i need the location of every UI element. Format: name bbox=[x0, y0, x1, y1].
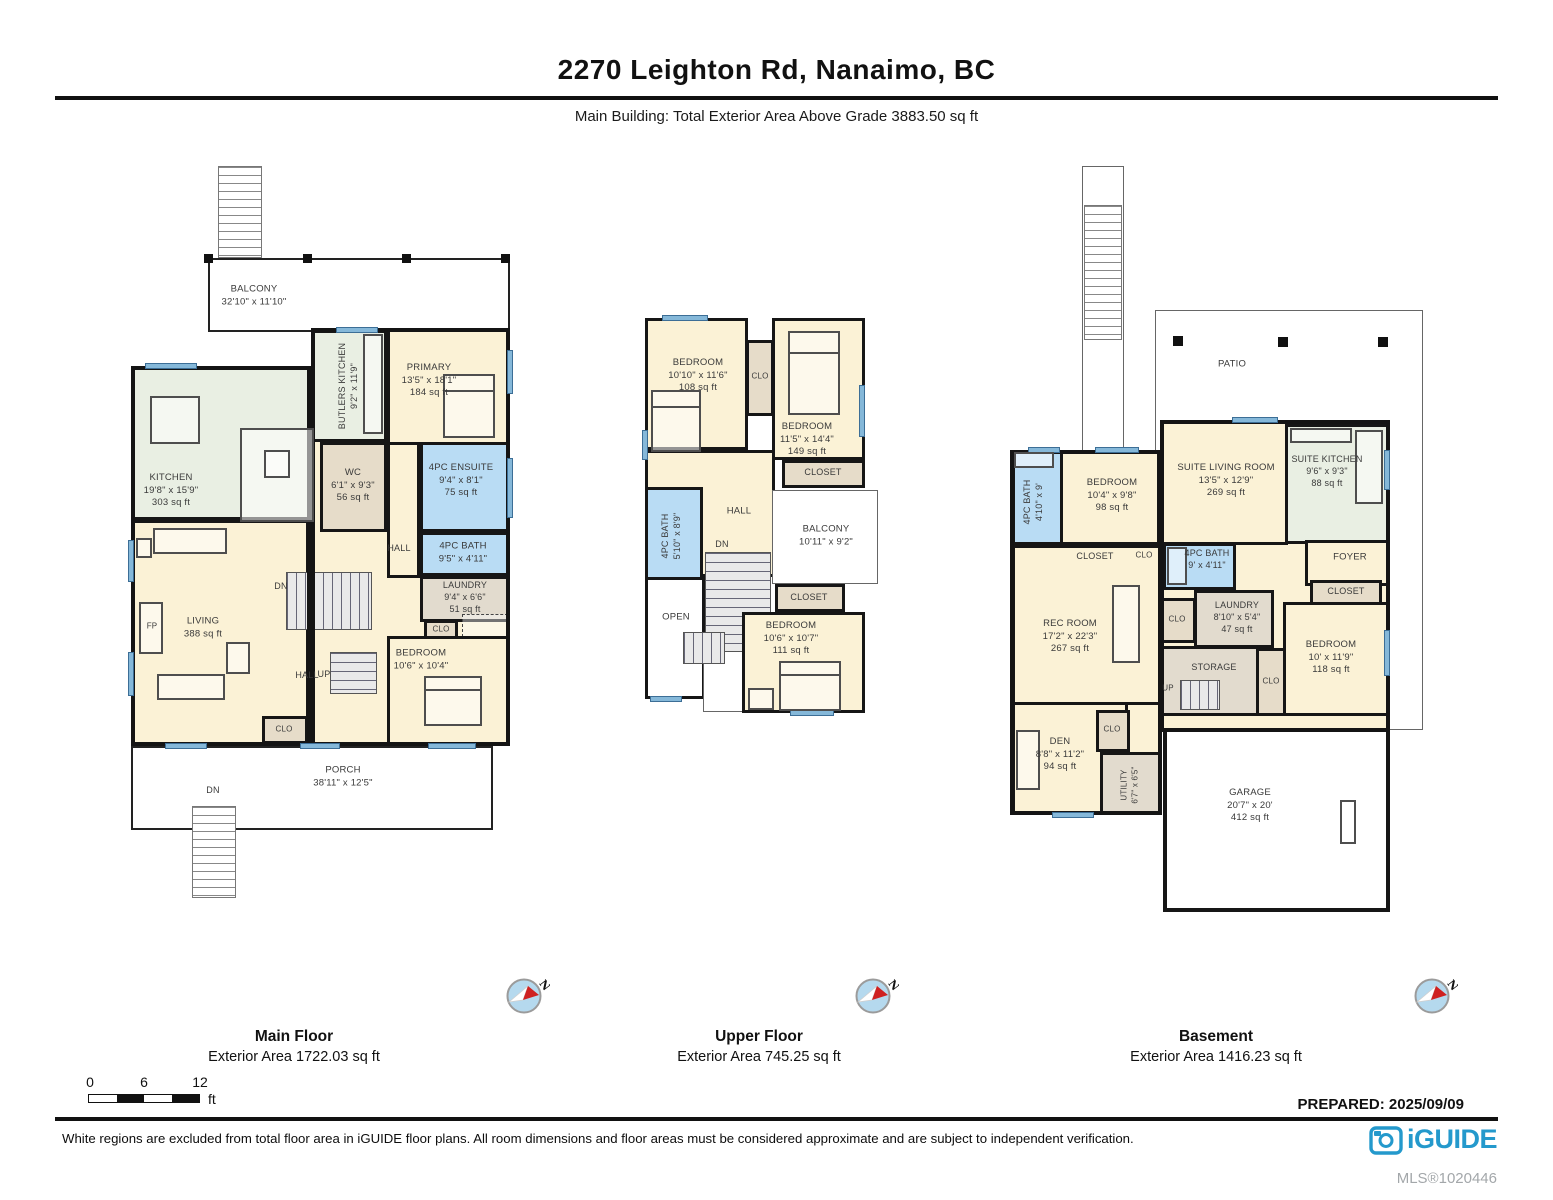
bathtub bbox=[1014, 452, 1054, 468]
window bbox=[642, 430, 648, 460]
label-clo-2: CLO bbox=[275, 725, 292, 736]
title-divider bbox=[55, 96, 1498, 100]
post bbox=[1378, 337, 1388, 347]
window bbox=[428, 743, 476, 749]
sofa bbox=[157, 674, 225, 700]
label-bsmt-clo-2: CLO bbox=[1168, 615, 1185, 626]
label-foyer: FOYER bbox=[1333, 552, 1367, 565]
window bbox=[165, 743, 207, 749]
label-upper-dn: DN bbox=[715, 539, 728, 551]
prepared-date: PREPARED: 2025/09/09 bbox=[1298, 1096, 1464, 1113]
label-clo: CLO bbox=[432, 625, 449, 636]
label-storage: STORAGE bbox=[1191, 662, 1236, 674]
room-hall-main bbox=[387, 442, 420, 578]
shelf bbox=[1112, 585, 1140, 663]
bed bbox=[424, 676, 482, 726]
kitchen-counter bbox=[1290, 428, 1352, 443]
island-sink bbox=[264, 450, 290, 478]
label-hall-2: HALL bbox=[295, 670, 318, 682]
label-bsmt-bath-2: 4PC BATH9' x 4'11" bbox=[1185, 548, 1230, 572]
iguide-logo-text: iGUIDE bbox=[1407, 1124, 1497, 1155]
floor-area: Exterior Area 745.25 sq ft bbox=[677, 1049, 841, 1065]
label-bsmt-bath-1: 4PC BATH4'10" x 9' bbox=[1022, 480, 1046, 525]
mls-number: MLS®1020446 bbox=[1397, 1170, 1497, 1187]
post bbox=[402, 254, 411, 263]
label-upper-bath: 4PC BATH5'10" x 8'9" bbox=[660, 513, 684, 560]
scale-unit: ft bbox=[208, 1091, 216, 1107]
floor-area: Exterior Area 1722.03 sq ft bbox=[208, 1049, 380, 1065]
label-up: UP bbox=[318, 669, 331, 681]
window bbox=[1384, 630, 1390, 676]
label-hall: HALL bbox=[387, 543, 410, 555]
page-title: 2270 Leighton Rd, Nanaimo, BC bbox=[0, 54, 1553, 86]
window bbox=[145, 363, 197, 369]
post bbox=[204, 254, 213, 263]
garage-door-pillar bbox=[1340, 800, 1356, 844]
floor-area: Exterior Area 1416.23 sq ft bbox=[1130, 1049, 1302, 1065]
compass-icon: N bbox=[504, 974, 550, 1016]
label-upper-open: OPEN bbox=[662, 612, 690, 625]
footer-divider bbox=[55, 1117, 1498, 1121]
label-bsmt-clo-1: CLO bbox=[1135, 551, 1152, 562]
label-bsmt-clo-4: CLO bbox=[1103, 725, 1120, 736]
label-upper-clo: CLO bbox=[751, 372, 768, 383]
side-table bbox=[136, 538, 152, 558]
floor-name: Main Floor bbox=[208, 1028, 380, 1046]
caption-main-floor: Main Floor Exterior Area 1722.03 sq ft bbox=[208, 1028, 380, 1065]
label-bsmt-bedroom-2: BEDROOM10' x 11'9"118 sq ft bbox=[1306, 639, 1357, 677]
label-utility: UTILITY6'7" x 6'5" bbox=[1119, 766, 1140, 803]
window bbox=[1384, 450, 1390, 490]
dining-table bbox=[150, 396, 200, 444]
label-bsmt-closet-1: CLOSET bbox=[1076, 551, 1113, 563]
label-dn: DN bbox=[274, 581, 287, 593]
scale-tick-0: 0 bbox=[86, 1074, 94, 1090]
label-bsmt-bedroom-1: BEDROOM10'4" x 9'8"98 sq ft bbox=[1087, 477, 1138, 515]
window bbox=[128, 652, 134, 696]
window bbox=[662, 315, 708, 321]
label-laundry: LAUNDRY9'4" x 6'6"51 sq ft bbox=[443, 580, 487, 616]
basement-stairs-up bbox=[1180, 680, 1220, 710]
label-upper-closet-1: CLOSET bbox=[804, 467, 841, 479]
floor-name: Basement bbox=[1130, 1028, 1302, 1046]
compass-icon: N bbox=[853, 974, 899, 1016]
basement-exterior-stairs bbox=[1084, 205, 1122, 340]
scale-tick-12: 12 bbox=[192, 1074, 208, 1090]
window bbox=[1232, 417, 1278, 423]
butlers-counter bbox=[363, 334, 383, 434]
floor-plan-page: 2270 Leighton Rd, Nanaimo, BC Main Build… bbox=[0, 0, 1553, 1200]
label-butlers-kitchen: BUTLERS KITCHEN9'2" x 11'9" bbox=[337, 343, 361, 430]
window bbox=[128, 540, 134, 582]
label-upper-hall: HALL bbox=[727, 506, 752, 519]
iguide-logo: iGUIDE bbox=[1369, 1124, 1497, 1155]
label-upper-bedroom-1: BEDROOM10'10" x 11'6"108 sq ft bbox=[668, 357, 727, 395]
window bbox=[507, 350, 513, 394]
label-wc: WC6'1" x 9'3"56 sq ft bbox=[331, 467, 375, 505]
post bbox=[501, 254, 510, 263]
window bbox=[1095, 447, 1139, 453]
post bbox=[303, 254, 312, 263]
label-bedroom: BEDROOM10'6" x 10'4" bbox=[394, 647, 449, 672]
label-ensuite: 4PC ENSUITE9'4" x 8'1"75 sq ft bbox=[429, 462, 494, 500]
label-upper-bedroom-3: BEDROOM10'6" x 10'7"111 sq ft bbox=[764, 620, 819, 658]
window bbox=[507, 458, 513, 518]
page-subtitle: Main Building: Total Exterior Area Above… bbox=[0, 108, 1553, 125]
window bbox=[859, 385, 865, 437]
label-rec-room: REC ROOM17'2" x 22'3"267 sq ft bbox=[1043, 618, 1098, 656]
caption-basement: Basement Exterior Area 1416.23 sq ft bbox=[1130, 1028, 1302, 1065]
label-suite-living: SUITE LIVING ROOM13'5" x 12'9"269 sq ft bbox=[1177, 462, 1274, 500]
label-upper-closet-2: CLOSET bbox=[790, 592, 827, 604]
caption-upper-floor: Upper Floor Exterior Area 745.25 sq ft bbox=[677, 1028, 841, 1065]
label-fireplace: FP bbox=[147, 622, 158, 633]
label-primary: PRIMARY13'5" x 18'1"184 sq ft bbox=[402, 362, 457, 400]
window bbox=[650, 696, 682, 702]
label-balcony: BALCONY32'10" x 11'10" bbox=[222, 283, 287, 308]
label-porch: PORCH38'11" x 12'5" bbox=[313, 764, 372, 789]
bed bbox=[651, 390, 701, 452]
main-stairs-dn bbox=[286, 572, 372, 630]
label-upper-bedroom-2: BEDROOM11'5" x 14'4"149 sq ft bbox=[780, 421, 834, 459]
iguide-camera-icon bbox=[1369, 1125, 1403, 1155]
label-living: LIVING388 sq ft bbox=[184, 615, 222, 640]
label-patio: PATIO bbox=[1218, 359, 1246, 372]
label-bsmt-laundry: LAUNDRY8'10" x 5'4"47 sq ft bbox=[1214, 600, 1261, 636]
label-dn-porch: DN bbox=[206, 785, 219, 797]
label-garage: GARAGE20'7" x 20'412 sq ft bbox=[1227, 787, 1273, 825]
label-suite-kitchen: SUITE KITCHEN9'6" x 9'3"88 sq ft bbox=[1291, 454, 1362, 490]
window bbox=[336, 327, 378, 333]
main-exterior-stairs-top bbox=[218, 166, 262, 258]
window bbox=[300, 743, 340, 749]
sofa bbox=[153, 528, 227, 554]
label-bsmt-closet-2: CLOSET bbox=[1327, 586, 1364, 598]
label-upper-balcony: BALCONY10'11" x 9'2" bbox=[799, 523, 853, 548]
upper-stairs-turn bbox=[683, 632, 725, 664]
main-stairs-up bbox=[330, 652, 377, 694]
window bbox=[1052, 812, 1094, 818]
scale-tick-6: 6 bbox=[140, 1074, 148, 1090]
post bbox=[1278, 337, 1288, 347]
armchair bbox=[226, 642, 250, 674]
post bbox=[1173, 336, 1183, 346]
label-den: DEN8'8" x 11'2"94 sq ft bbox=[1036, 736, 1085, 774]
label-bsmt-up: UP bbox=[1162, 684, 1174, 695]
main-porch-deck bbox=[131, 746, 493, 830]
bed bbox=[788, 331, 840, 415]
label-kitchen: KITCHEN19'8" x 15'9"303 sq ft bbox=[144, 472, 199, 510]
label-bsmt-clo-3: CLO bbox=[1262, 677, 1279, 688]
compass-icon: N bbox=[1412, 974, 1458, 1016]
floor-name: Upper Floor bbox=[677, 1028, 841, 1046]
bed bbox=[779, 661, 841, 711]
dresser bbox=[748, 688, 774, 710]
disclaimer-text: White regions are excluded from total fl… bbox=[62, 1131, 1242, 1146]
scale-bar bbox=[88, 1094, 200, 1103]
label-bath: 4PC BATH9'5" x 4'11" bbox=[439, 540, 488, 565]
main-exterior-stairs-bottom bbox=[192, 806, 236, 898]
